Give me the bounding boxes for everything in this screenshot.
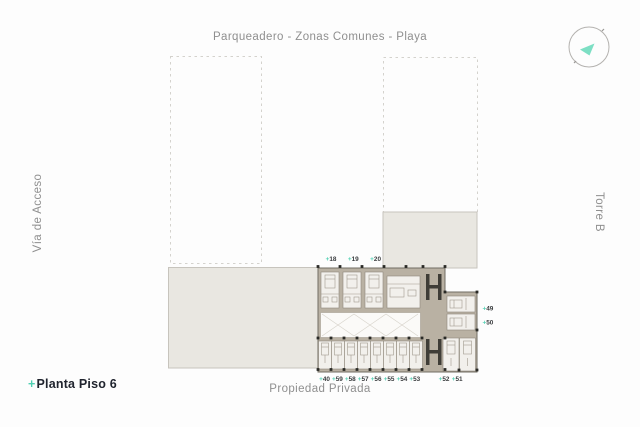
dashed-zone-parking-left bbox=[171, 57, 262, 264]
floor-plan-svg: +18+19+20+40+59+58+57+56+55+54+53+52+51+… bbox=[0, 0, 640, 427]
unit-label: +40 bbox=[319, 376, 330, 383]
unit-label: +51 bbox=[452, 376, 463, 383]
central-void bbox=[321, 313, 421, 338]
unit-label: +57 bbox=[358, 376, 369, 383]
unit-label: +55 bbox=[384, 376, 395, 383]
unit-label: +19 bbox=[348, 256, 359, 263]
unit-label: +54 bbox=[396, 376, 407, 383]
slab-upper-right bbox=[383, 212, 477, 268]
unit-label: +50 bbox=[483, 319, 494, 326]
slab-left-wing bbox=[169, 268, 320, 369]
unit-label: +52 bbox=[439, 376, 450, 383]
unit-label: +53 bbox=[409, 376, 420, 383]
dashed-zone-parking-right bbox=[384, 58, 478, 213]
unit-label: +58 bbox=[345, 376, 356, 383]
unit-label: +56 bbox=[371, 376, 382, 383]
unit-label: +59 bbox=[332, 376, 343, 383]
unit-label: +49 bbox=[483, 306, 494, 313]
unit-label: +20 bbox=[370, 256, 381, 263]
unit-label: +18 bbox=[326, 256, 337, 263]
